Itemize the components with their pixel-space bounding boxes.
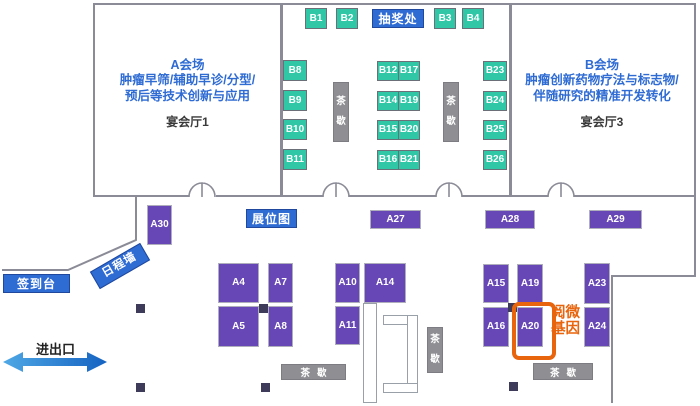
stage-outline-column [363, 303, 377, 403]
tea-break-stage-side: 茶歇 [427, 327, 443, 373]
room-b-topic-line2: 伴随研究的精准开发转化 [509, 89, 695, 104]
booth-b19: B19 [398, 91, 420, 111]
booth-a19: A19 [517, 264, 543, 303]
booth-a29: A29 [589, 210, 642, 229]
booth-a23: A23 [584, 263, 610, 304]
room-a-topic-line1: 肿瘤早筛/辅助早诊/分型/ [93, 73, 282, 88]
room-b-info: B会场 肿瘤创新药物疗法与标志物/ 伴随研究的精准开发转化 宴会厅3 [509, 58, 695, 130]
booth-b21: B21 [398, 150, 420, 170]
highlight-exhibitor-name: 阅微 基因 [551, 306, 580, 338]
booth-a4: A4 [218, 263, 259, 303]
booth-b16: B16 [377, 150, 399, 170]
pillar [261, 383, 270, 392]
booth-a5: A5 [218, 306, 259, 347]
room-a-hall: 宴会厅1 [93, 113, 282, 130]
booth-b12: B12 [377, 61, 399, 81]
booth-b20: B20 [398, 120, 420, 140]
stage-outline-bottom [383, 383, 418, 393]
booth-b1: B1 [305, 8, 327, 29]
booth-a14: A14 [364, 263, 406, 303]
booth-a15: A15 [483, 264, 509, 303]
signin-desk: 签到台 [3, 274, 70, 293]
floor-map-sign: 展位图 [246, 209, 297, 228]
booth-a28: A28 [485, 210, 535, 229]
booth-b4: B4 [462, 8, 484, 29]
stage-outline-side [407, 315, 418, 393]
booth-b25: B25 [483, 120, 507, 140]
booth-a11: A11 [335, 306, 360, 345]
highlight-frame [512, 302, 556, 360]
booth-b17: B17 [398, 61, 420, 81]
booth-b14: B14 [377, 91, 399, 111]
room-b-hall: 宴会厅3 [509, 113, 695, 130]
booth-a24: A24 [584, 307, 610, 347]
lottery-sign: 抽奖处 [372, 9, 424, 28]
tea-break-bottom-left: 茶歇 [281, 364, 346, 380]
booth-b24: B24 [483, 91, 507, 111]
booth-b10: B10 [283, 119, 307, 140]
tea-break-column-right: 茶歇 [443, 82, 459, 142]
tea-break-column-left: 茶歇 [333, 82, 349, 142]
pillar [136, 383, 145, 392]
booth-b23: B23 [483, 61, 507, 81]
booth-b9: B9 [283, 90, 307, 111]
booth-b15: B15 [377, 120, 399, 140]
booth-a7: A7 [268, 263, 293, 303]
pillar [509, 382, 518, 391]
booth-b11: B11 [283, 149, 307, 170]
room-b-topic-line1: 肿瘤创新药物疗法与标志物/ [509, 73, 695, 88]
booth-a30: A30 [147, 205, 172, 245]
pillar [136, 304, 145, 313]
door-arc-icon [189, 183, 574, 197]
booth-a16: A16 [483, 307, 509, 347]
booth-a27: A27 [370, 210, 421, 229]
tea-break-bottom-right: 茶歇 [533, 363, 593, 380]
room-a-title: A会场 [93, 58, 282, 73]
booth-b26: B26 [483, 150, 507, 170]
booth-b2: B2 [336, 8, 358, 29]
booth-a10: A10 [335, 263, 360, 303]
room-a-info: A会场 肿瘤早筛/辅助早诊/分型/ 预后等技术创新与应用 宴会厅1 [93, 58, 282, 130]
room-b-title: B会场 [509, 58, 695, 73]
booth-b3: B3 [434, 8, 456, 29]
entrance-arrow-icon [2, 351, 108, 373]
booth-a8: A8 [268, 306, 293, 347]
pillar [259, 304, 268, 313]
room-a-topic-line2: 预后等技术创新与应用 [93, 89, 282, 104]
exhibition-floor-plan: A会场 肿瘤早筛/辅助早诊/分型/ 预后等技术创新与应用 宴会厅1 B会场 肿瘤… [0, 0, 700, 406]
booth-b8: B8 [283, 60, 307, 81]
